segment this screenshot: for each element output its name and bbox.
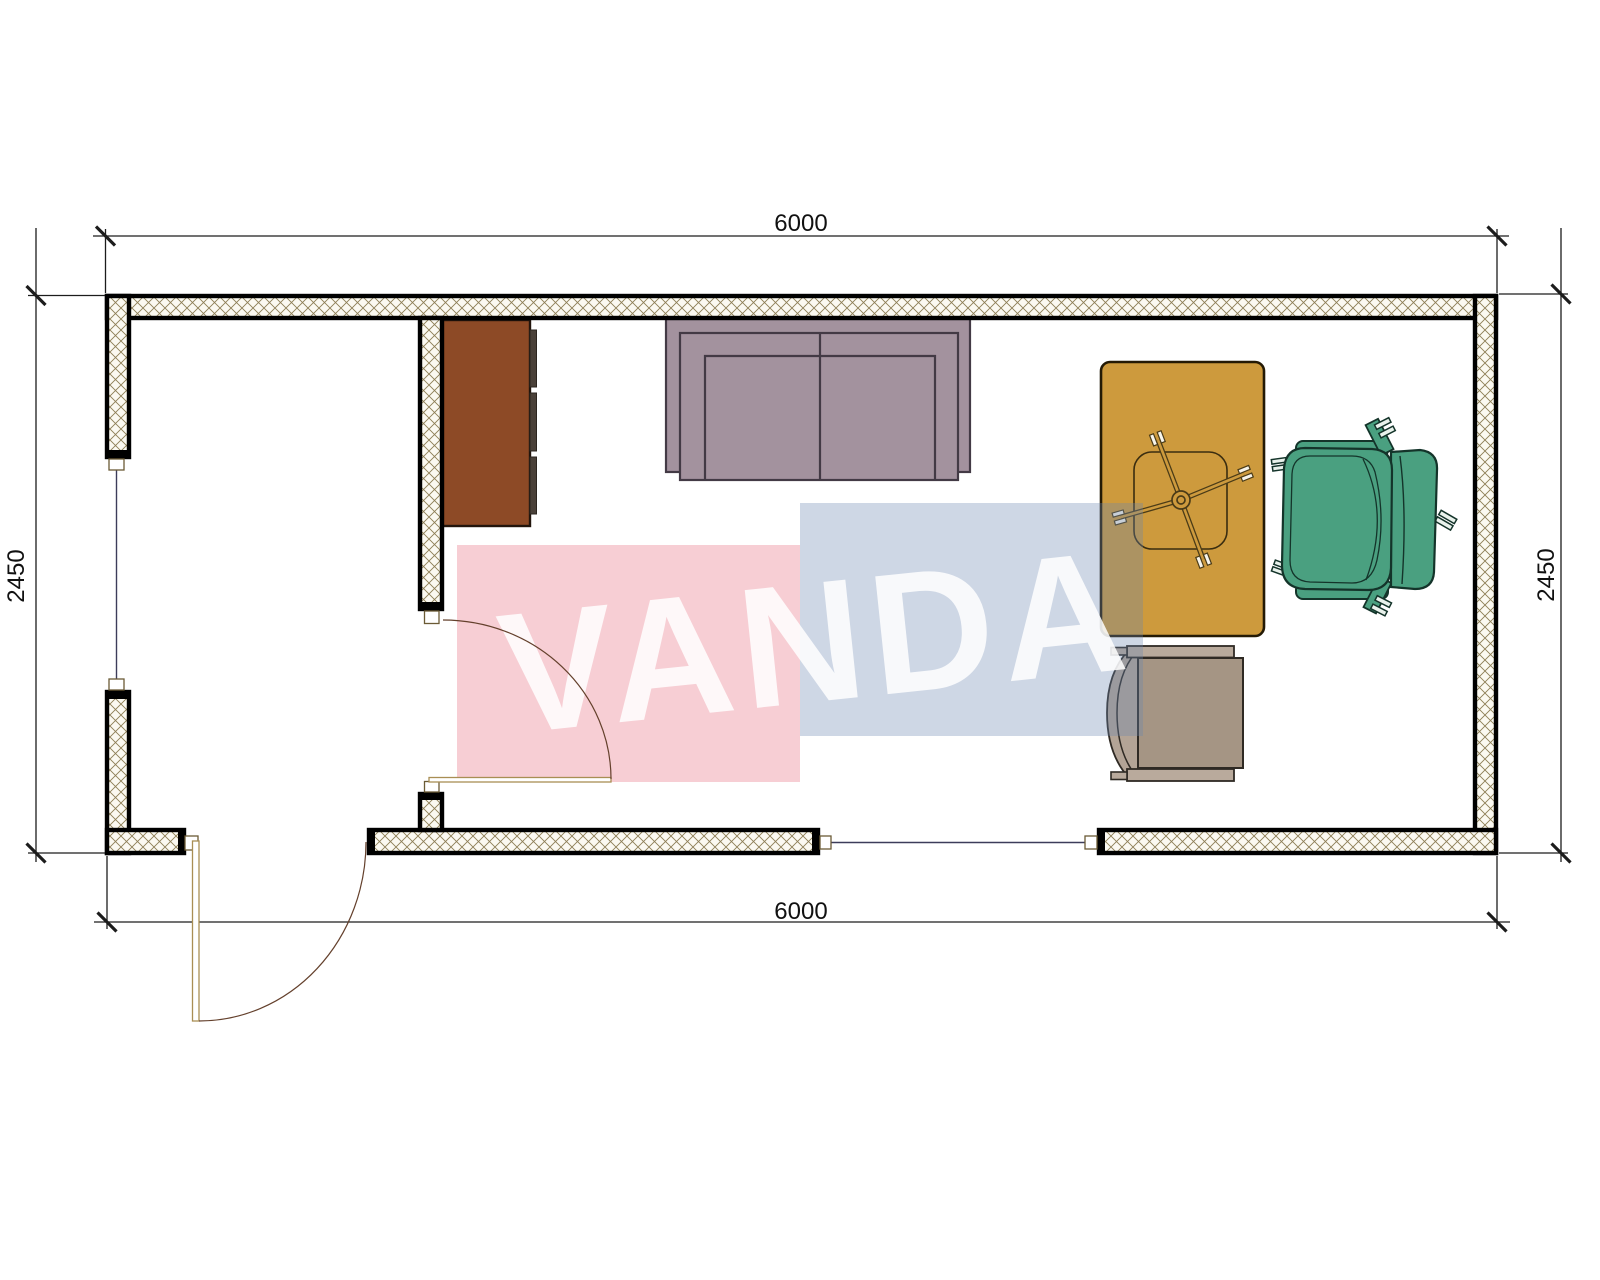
- svg-text:2450: 2450: [1533, 548, 1560, 601]
- svg-text:6000: 6000: [774, 210, 827, 237]
- svg-text:6000: 6000: [774, 898, 827, 925]
- svg-text:2450: 2450: [3, 549, 30, 602]
